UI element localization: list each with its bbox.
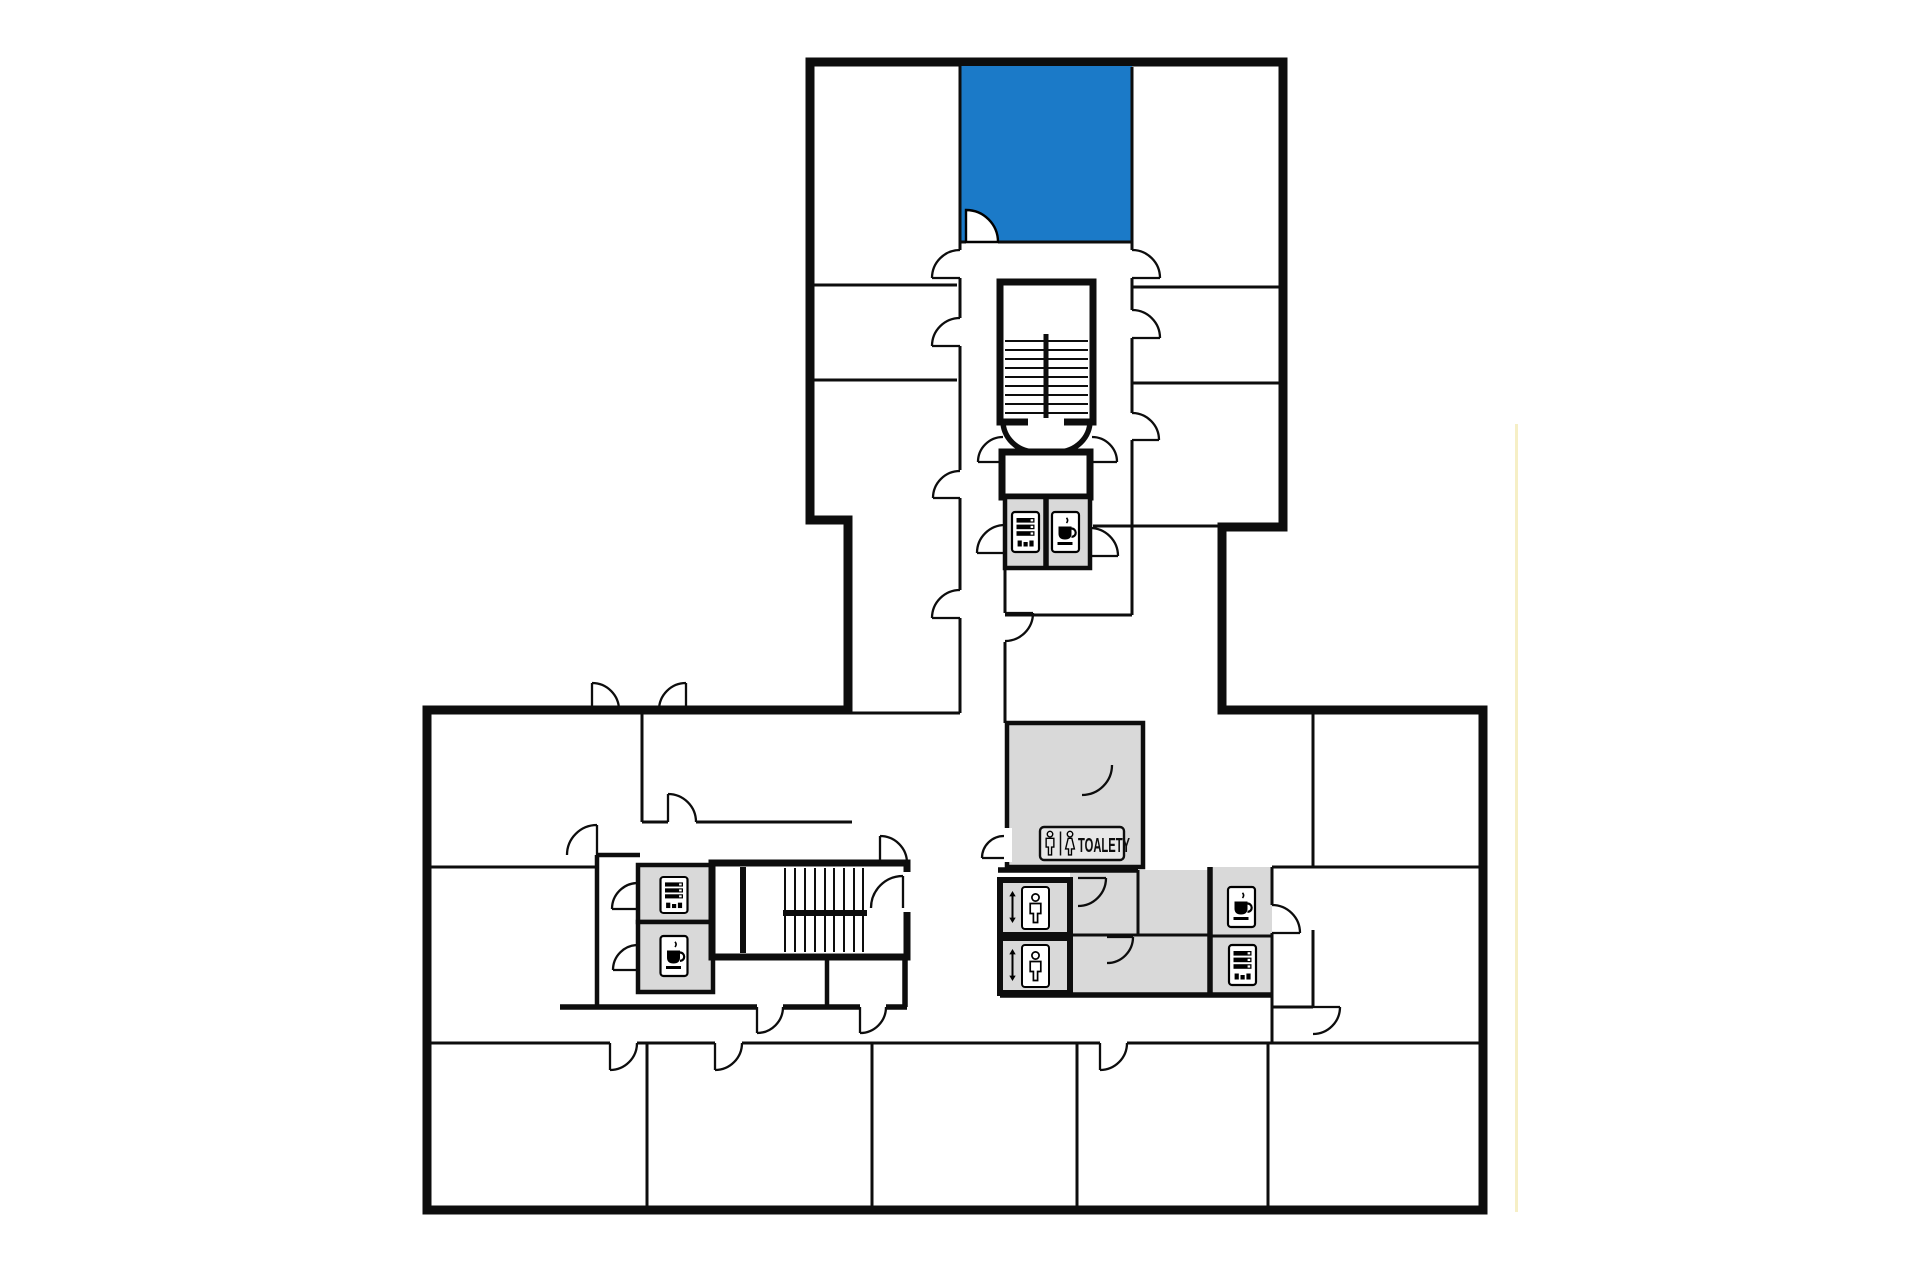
upper-elevator-shaft (1002, 452, 1090, 497)
lower-stairwell (712, 863, 912, 957)
vending-machine-icon (1229, 945, 1256, 985)
coffee-machine-icon (1052, 512, 1079, 552)
vending-machine-icon (661, 877, 688, 913)
elevator-icon (1022, 887, 1049, 929)
coffee-machine-icon (661, 936, 688, 976)
toilets-block: TOALETY (1001, 723, 1143, 867)
floorplan-page: TOALETY (0, 0, 1920, 1276)
lower-service-boxes (638, 865, 713, 992)
toilets-sign-label: TOALETY (1078, 835, 1130, 857)
upper-service-room (1005, 497, 1090, 568)
building-outline (427, 62, 1483, 1210)
elevator-icon (1022, 945, 1049, 987)
toilets-sign: TOALETY (1040, 827, 1130, 860)
floorplan-canvas: TOALETY (0, 0, 1920, 1276)
coffee-machine-icon (1228, 887, 1255, 927)
lower-elevators (1000, 880, 1070, 993)
edge-artifact (1515, 424, 1518, 1212)
vending-machine-icon (1012, 512, 1039, 552)
